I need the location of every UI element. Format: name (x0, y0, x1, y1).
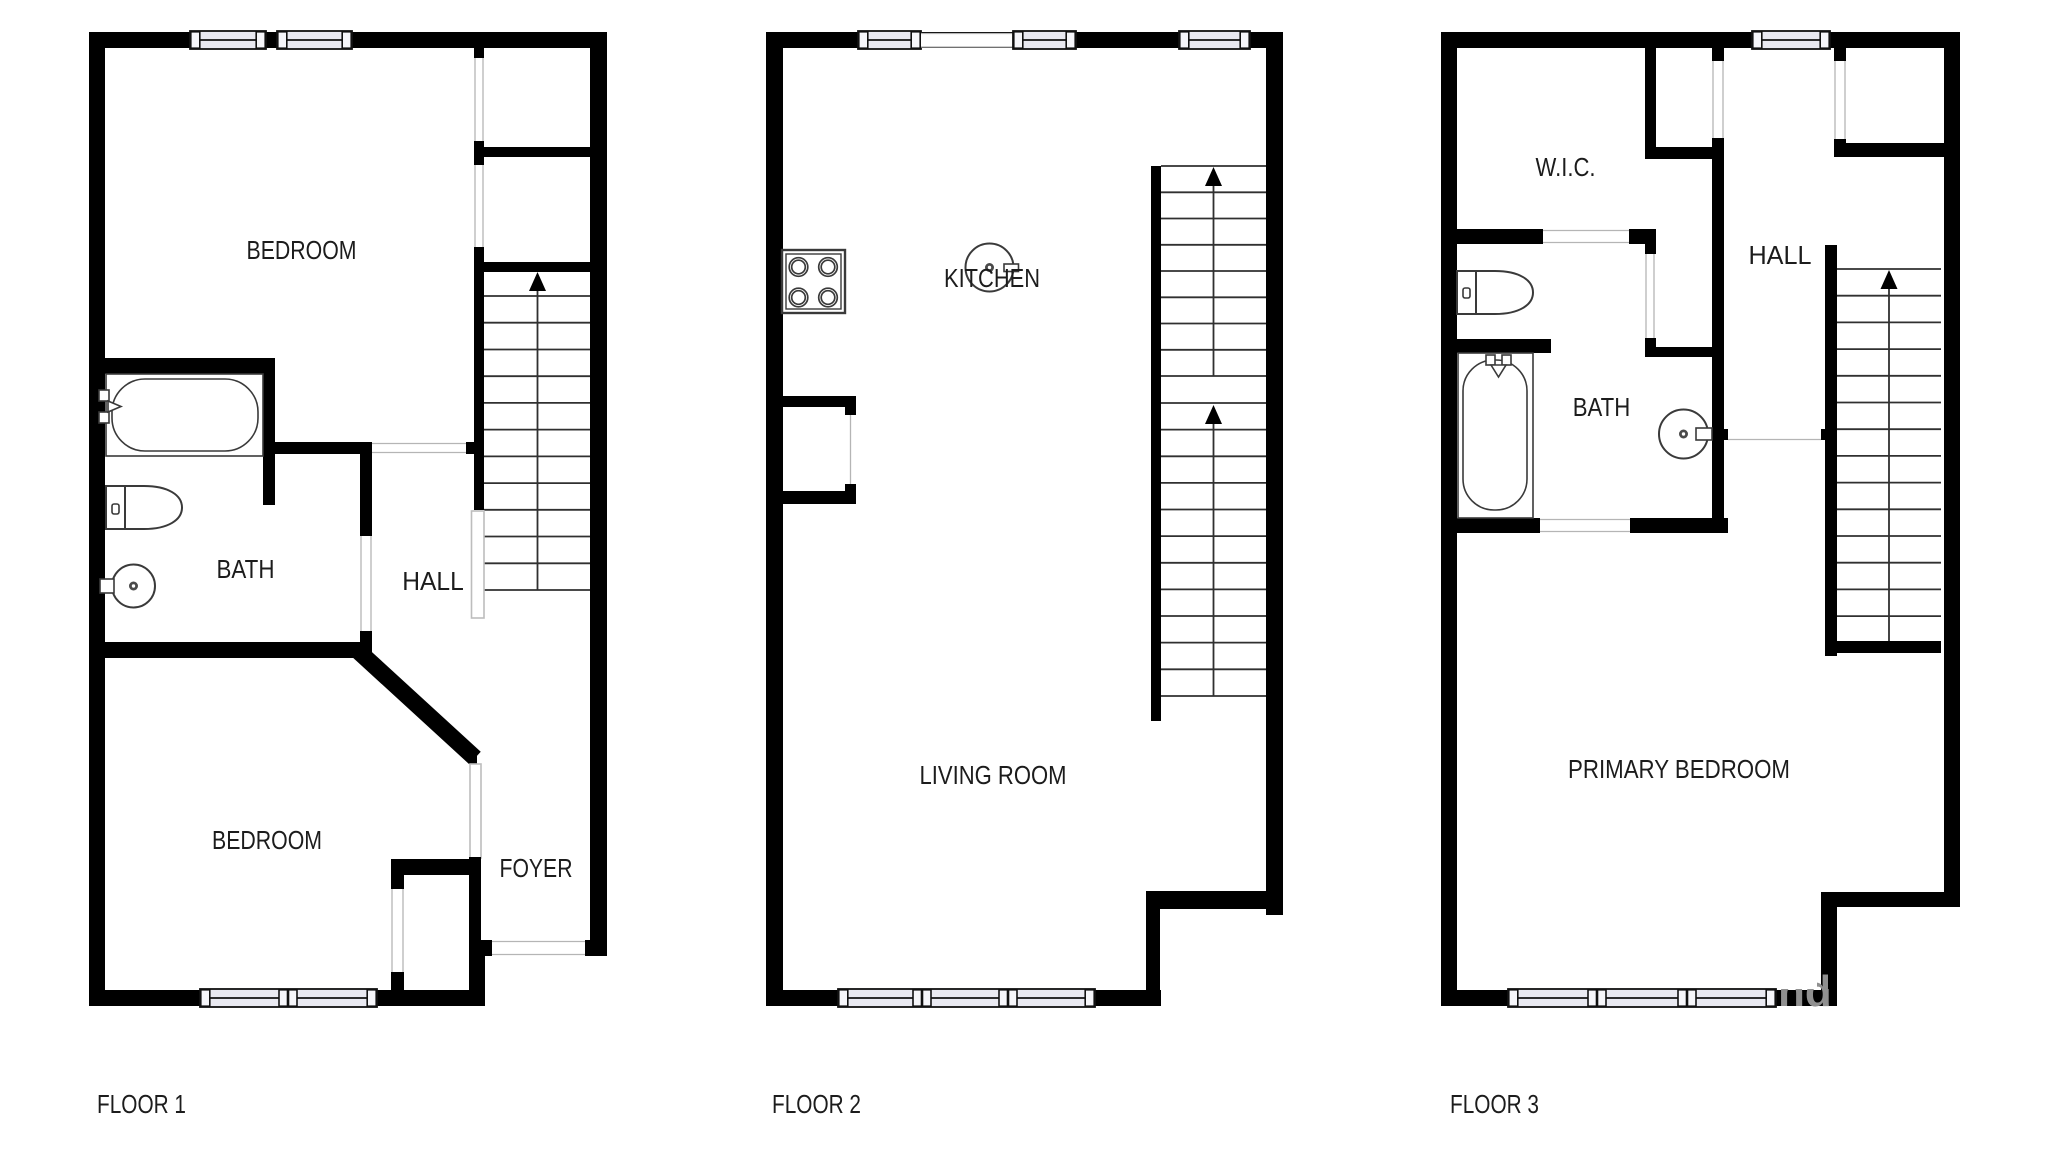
svg-text:W.I.C.: W.I.C. (1536, 152, 1596, 182)
svg-text:KITCHEN: KITCHEN (944, 263, 1040, 293)
svg-text:FLOOR 2: FLOOR 2 (772, 1089, 861, 1119)
svg-text:LIVING ROOM: LIVING ROOM (920, 760, 1067, 790)
svg-text:FLOOR 1: FLOOR 1 (97, 1089, 186, 1119)
svg-text:BATH: BATH (217, 554, 275, 584)
svg-text:BATH: BATH (1573, 392, 1631, 422)
svg-text:HALL: HALL (1749, 240, 1812, 270)
svg-text:FOYER: FOYER (500, 853, 573, 883)
svg-text:HALL: HALL (402, 566, 464, 596)
svg-text:PRIMARY BEDROOM: PRIMARY BEDROOM (1568, 754, 1790, 784)
svg-text:FLOOR 3: FLOOR 3 (1450, 1089, 1539, 1119)
svg-text:BEDROOM: BEDROOM (247, 235, 357, 265)
svg-text:BEDROOM: BEDROOM (212, 825, 322, 855)
